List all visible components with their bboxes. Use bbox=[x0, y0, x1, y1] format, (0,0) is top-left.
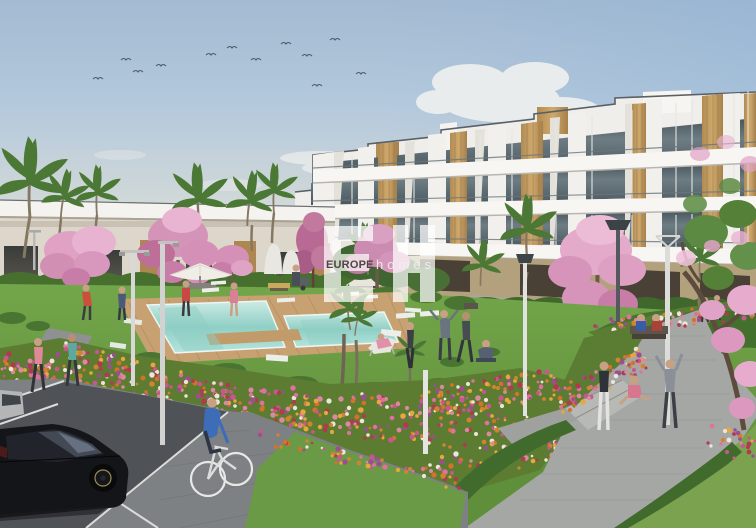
svg-text:EUROPE: EUROPE bbox=[326, 259, 374, 271]
svg-text:homes: homes bbox=[376, 257, 435, 272]
